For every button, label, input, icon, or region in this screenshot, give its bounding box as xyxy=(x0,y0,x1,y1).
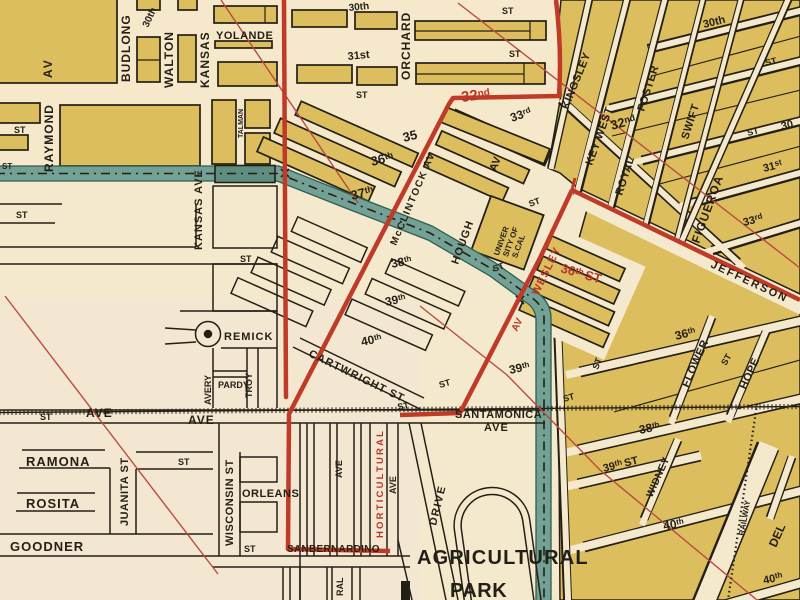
svg-text:AVE: AVE xyxy=(388,476,398,494)
svg-text:ST: ST xyxy=(16,210,28,220)
svg-text:ST: ST xyxy=(2,162,12,171)
svg-text:AGRICULTURAL: AGRICULTURAL xyxy=(417,547,589,569)
svg-text:REMICK: REMICK xyxy=(224,331,273,343)
svg-text:AVERY: AVERY xyxy=(203,375,213,405)
svg-text:ST: ST xyxy=(178,457,190,467)
svg-text:ST: ST xyxy=(509,49,521,59)
svg-text:ST: ST xyxy=(14,125,26,135)
svg-text:KANSAS: KANSAS xyxy=(198,31,212,88)
svg-text:AVE: AVE xyxy=(86,406,113,420)
svg-text:ORCHARD: ORCHARD xyxy=(399,12,413,80)
svg-text:TROY: TROY xyxy=(244,373,254,398)
svg-text:ST: ST xyxy=(502,6,514,16)
svg-text:ST: ST xyxy=(40,412,52,422)
svg-text:RAYMOND: RAYMOND xyxy=(42,104,56,172)
svg-text:TALMAN: TALMAN xyxy=(238,109,245,138)
svg-text:ST: ST xyxy=(240,254,252,264)
svg-text:ST: ST xyxy=(397,400,411,412)
svg-text:RAL: RAL xyxy=(335,577,345,596)
svg-text:AVE: AVE xyxy=(188,413,215,427)
svg-text:WISCONSIN ST: WISCONSIN ST xyxy=(224,459,236,546)
svg-text:ORLEANS: ORLEANS xyxy=(242,488,299,500)
svg-text:ST: ST xyxy=(244,544,256,554)
svg-text:SANTAMONICA: SANTAMONICA xyxy=(455,409,542,421)
svg-text:WALTON: WALTON xyxy=(162,31,176,88)
svg-text:HORTICULTURAL: HORTICULTURAL xyxy=(375,429,386,538)
svg-text:31st: 31st xyxy=(347,49,370,63)
svg-text:RAMONA: RAMONA xyxy=(26,454,91,469)
svg-text:AVE: AVE xyxy=(484,422,509,434)
svg-text:ROSITA: ROSITA xyxy=(26,496,80,511)
svg-text:JUANITA ST: JUANITA ST xyxy=(119,457,131,526)
svg-text:KANSAS AVE: KANSAS AVE xyxy=(193,169,205,250)
svg-text:GOODNER: GOODNER xyxy=(10,539,84,554)
svg-text:AV: AV xyxy=(41,58,55,78)
svg-text:AVE: AVE xyxy=(334,460,344,478)
svg-text:ST: ST xyxy=(356,90,368,100)
svg-text:SANBERNARDINO: SANBERNARDINO xyxy=(287,544,380,555)
svg-text:BUDLONG: BUDLONG xyxy=(119,14,133,82)
svg-text:PARK: PARK xyxy=(450,580,507,600)
svg-text:30th: 30th xyxy=(348,1,370,14)
svg-text:YOLANDE: YOLANDE xyxy=(216,30,273,42)
